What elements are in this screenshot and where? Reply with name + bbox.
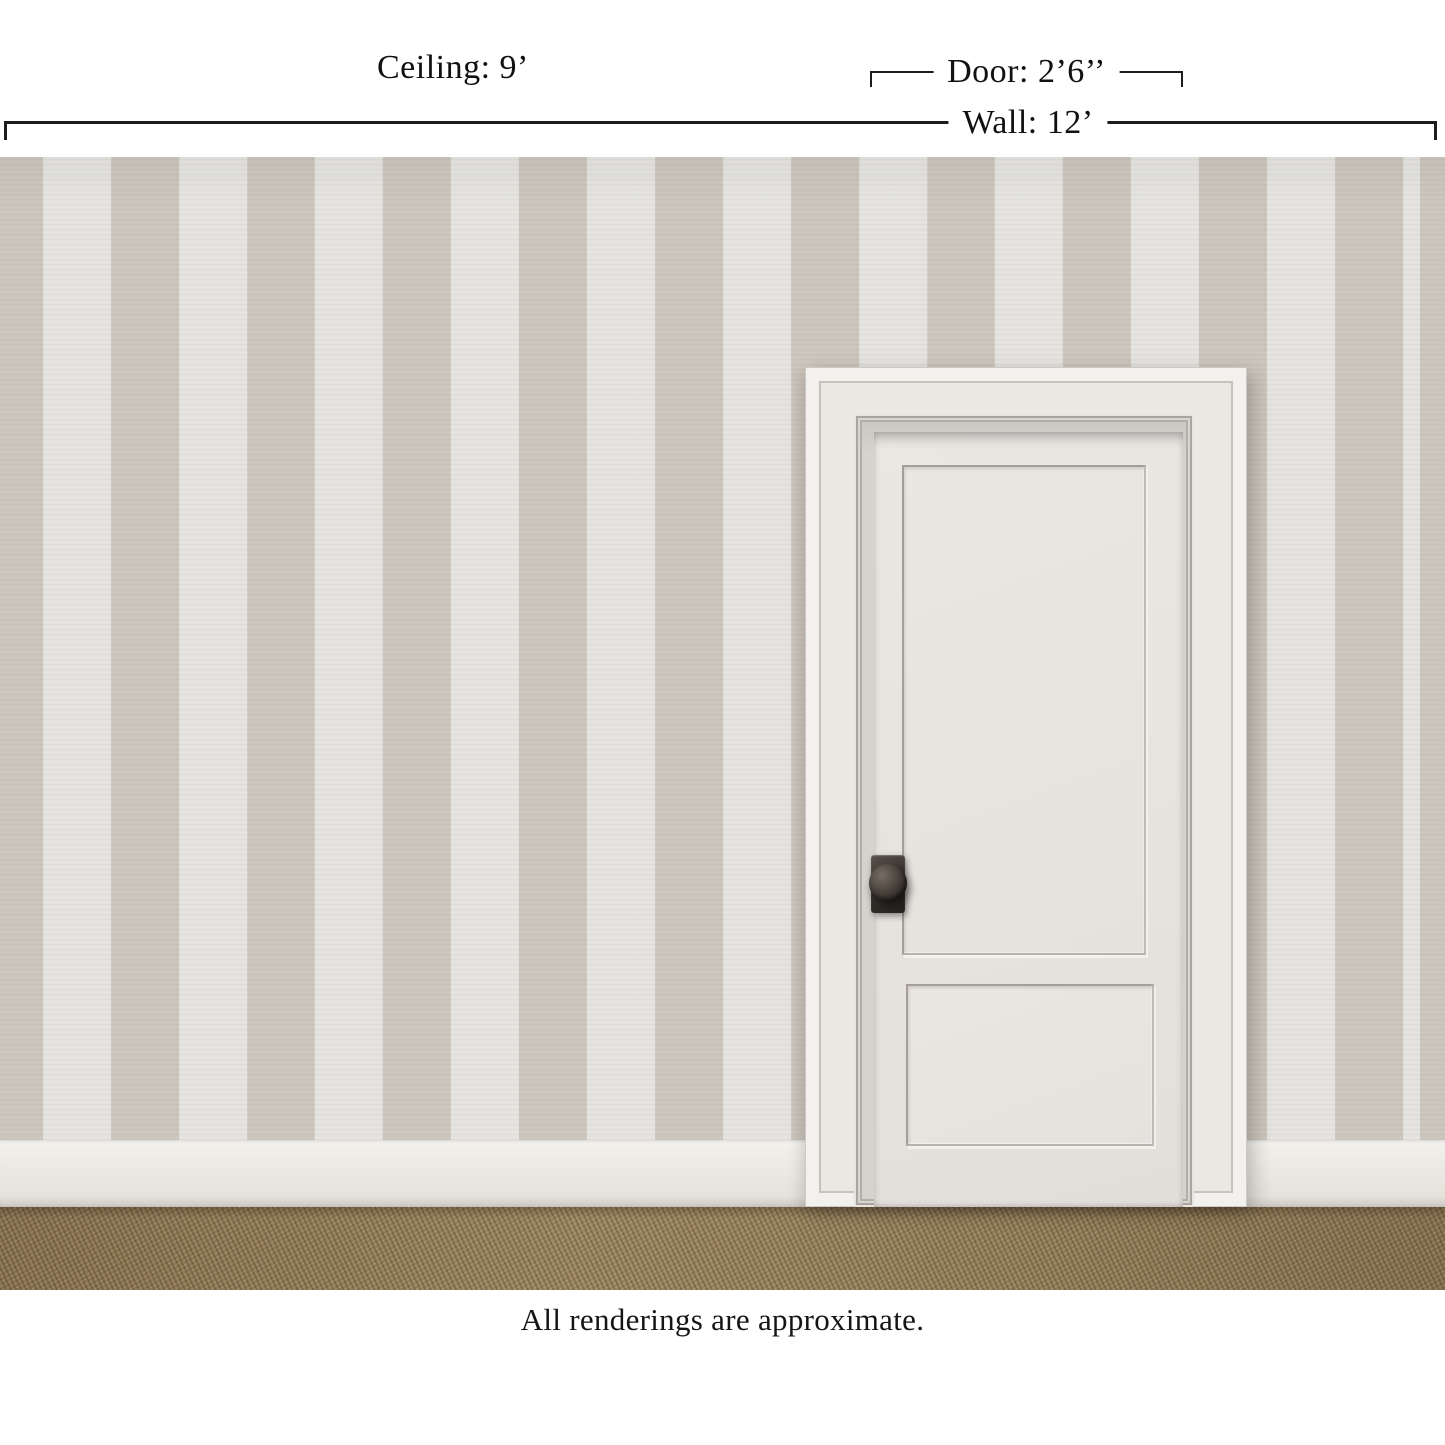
ceiling-dimension-label: Ceiling: 9’ [377, 48, 529, 88]
door-lower-panel [906, 984, 1154, 1146]
wall-dimension-line: Wall: 12’ [4, 121, 1437, 124]
wallpaper-room-preview: Ceiling: 9’ Door: 2’6’’ Wall: 12’ All re… [0, 0, 1445, 1445]
door-dimension-label: Door: 2’6’’ [933, 52, 1120, 92]
door-upper-panel [902, 465, 1146, 955]
wall-dimension-label: Wall: 12’ [948, 103, 1107, 143]
room-rendering [0, 157, 1445, 1290]
door-slab [874, 432, 1183, 1207]
door-dimension-line: Door: 2’6’’ [870, 71, 1183, 73]
disclaimer-note: All renderings are approximate. [0, 1301, 1445, 1339]
door [805, 367, 1247, 1207]
carpet-floor [0, 1207, 1445, 1290]
door-knob [869, 864, 907, 902]
